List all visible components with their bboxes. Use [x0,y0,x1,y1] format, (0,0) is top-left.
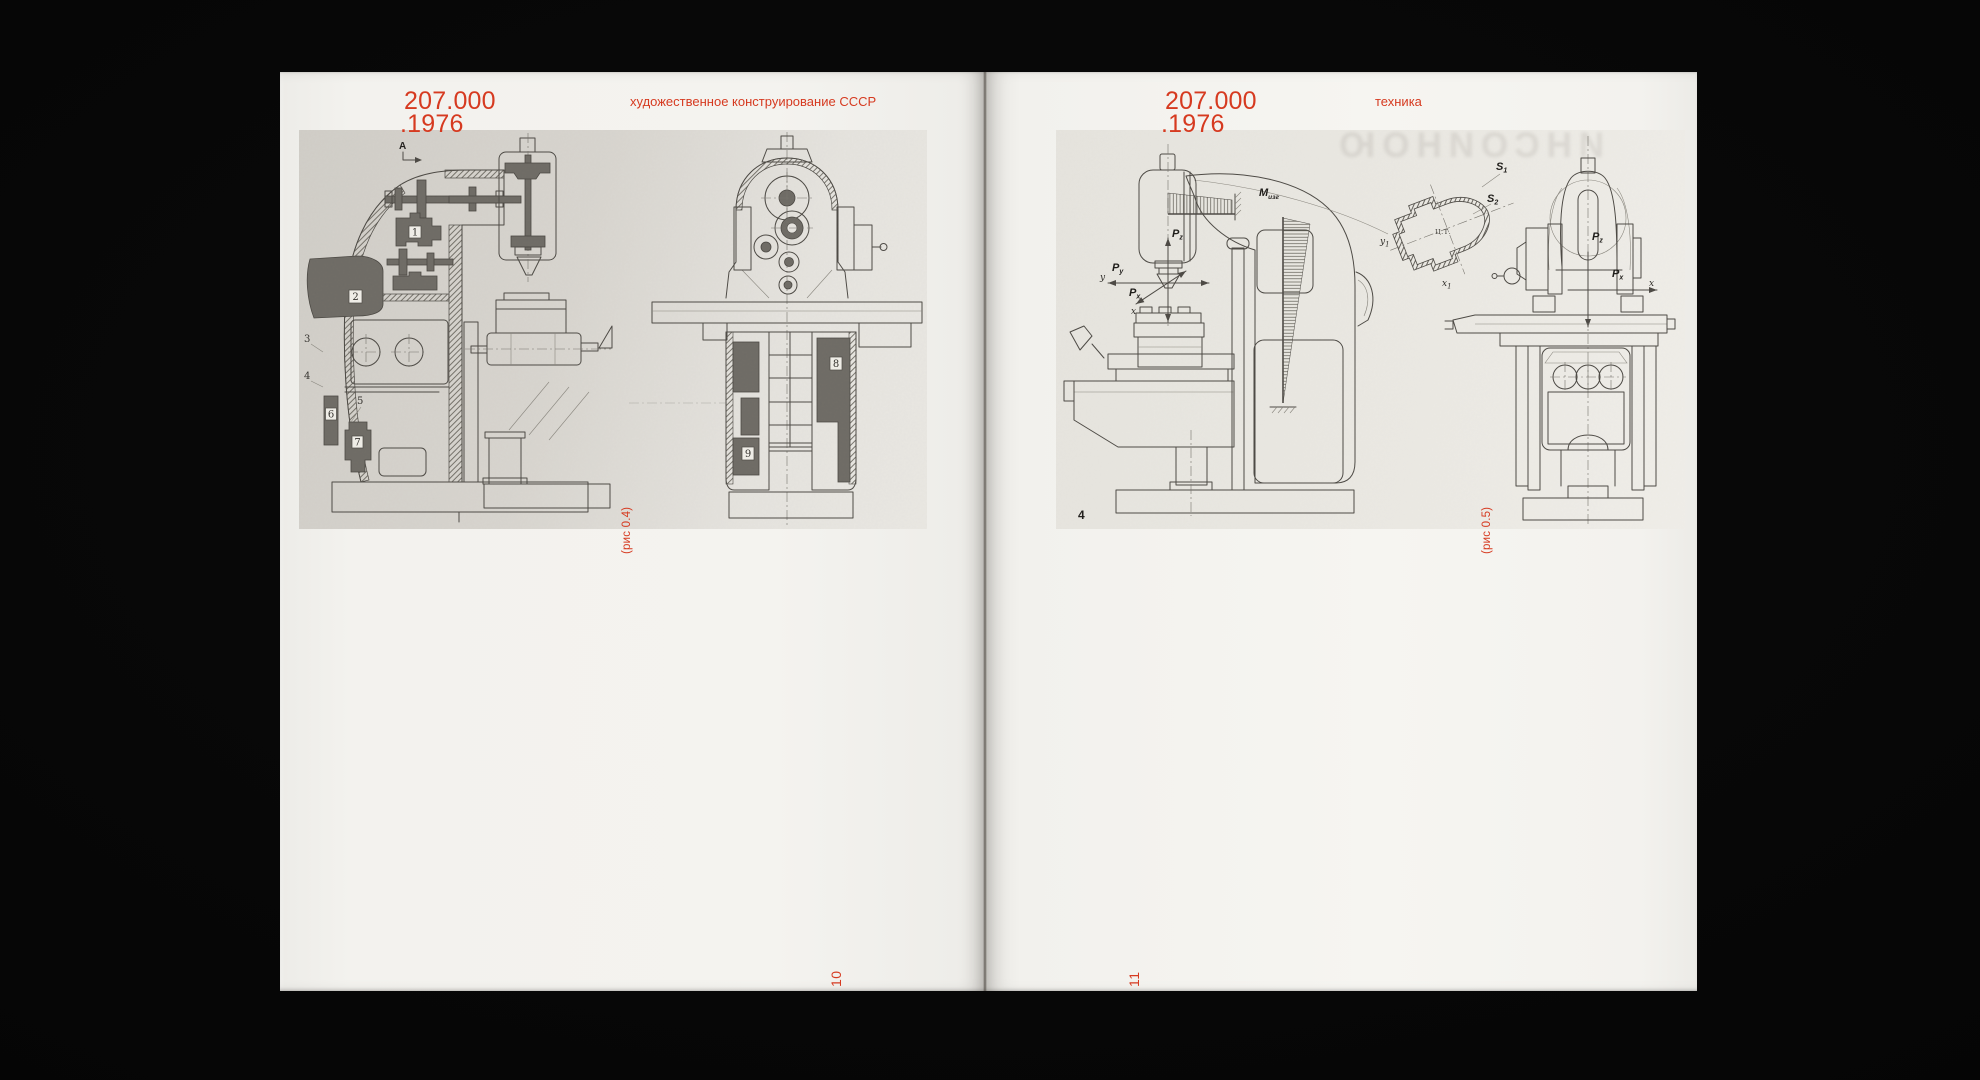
plate-figure-0-5: ИНСОИНОЮ [1056,130,1685,529]
page-right: 207.000 .1976 техника ИНСОИНОЮ [985,72,1697,991]
plate-figure-0-4: 1 2 3 4 5 6 7 A [299,130,927,529]
book-spread-photo: 207.000 .1976 художественное конструиров… [0,0,1980,1080]
running-head-left: художественное конструирование СССР [630,95,876,109]
figure-caption-0-4: (рис 0.4) [621,492,633,554]
halftone-grain [1056,130,1685,529]
halftone-grain [299,130,927,529]
milling-machine-forces-drawing: Mизг Pz Py Px y x [1056,130,1685,529]
page-left: 207.000 .1976 художественное конструиров… [280,72,985,991]
running-head-right: техника [1375,95,1422,109]
catalog-number-right: 207.000 .1976 [1165,90,1257,136]
milling-machine-section-drawing: 1 2 3 4 5 6 7 A [299,130,927,529]
book-gutter [983,72,987,991]
page-number-10: 10 [828,941,844,987]
page-number-11: 11 [1126,941,1142,987]
catalog-number-line2: .1976 [1161,113,1257,136]
catalog-number-line2: .1976 [400,113,496,136]
catalog-number-left: 207.000 .1976 [404,90,496,136]
figure-caption-0-5: (рис 0.5) [1481,492,1493,554]
